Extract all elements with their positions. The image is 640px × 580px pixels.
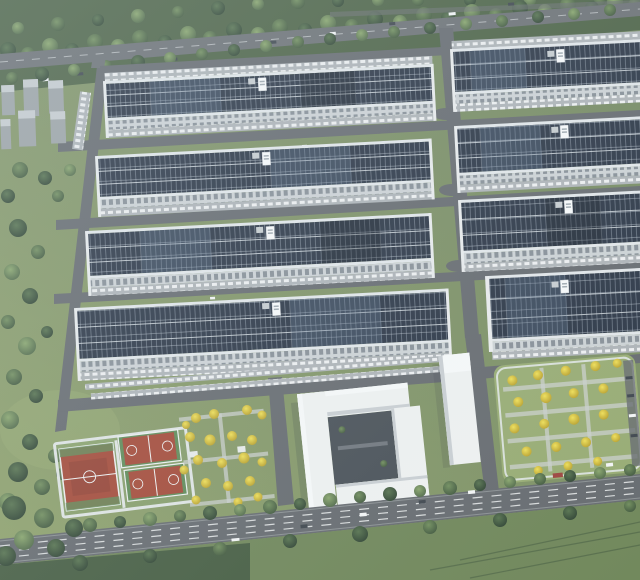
aerial-rendering [0,0,640,580]
haze-overlay [0,0,640,580]
industrial-park-scene [0,0,640,580]
